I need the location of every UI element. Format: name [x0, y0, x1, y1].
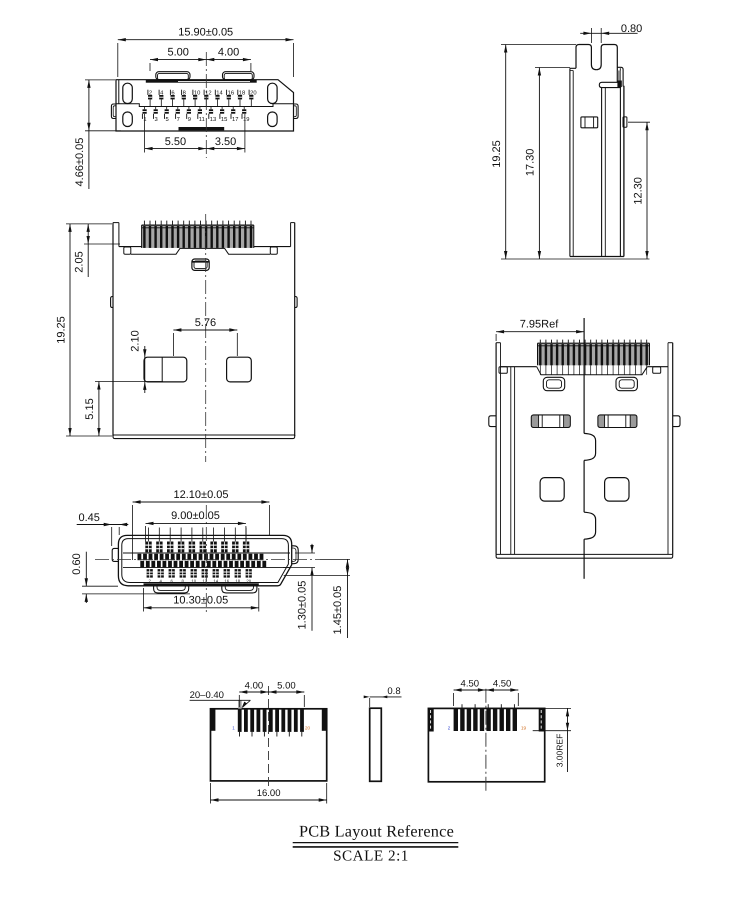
svg-text:19: 19: [243, 116, 249, 123]
svg-text:12: 12: [202, 579, 207, 584]
svg-text:1.45±0.05: 1.45±0.05: [332, 586, 344, 635]
svg-text:3: 3: [155, 116, 158, 123]
svg-text:12.30: 12.30: [632, 177, 644, 205]
svg-text:3.00REF: 3.00REF: [555, 734, 565, 768]
svg-text:15.90±0.05: 15.90±0.05: [178, 26, 233, 38]
svg-text:20: 20: [246, 579, 251, 584]
svg-text:4.00: 4.00: [218, 47, 239, 59]
svg-text:20: 20: [305, 726, 311, 731]
svg-text:4.50: 4.50: [493, 679, 512, 690]
svg-text:2.05: 2.05: [73, 251, 85, 272]
svg-text:20–0.40: 20–0.40: [190, 690, 224, 701]
svg-text:PCB Layout Reference: PCB Layout Reference: [299, 822, 454, 841]
svg-text:14: 14: [213, 579, 218, 584]
svg-text:1.30±0.05: 1.30±0.05: [296, 581, 308, 630]
svg-text:10.30±0.05: 10.30±0.05: [173, 595, 228, 607]
svg-text:12.10±0.05: 12.10±0.05: [174, 489, 229, 501]
svg-text:6: 6: [171, 89, 174, 96]
svg-text:10: 10: [194, 89, 200, 96]
svg-text:18: 18: [239, 89, 245, 96]
svg-text:0.80: 0.80: [621, 23, 642, 35]
svg-text:13: 13: [210, 116, 216, 123]
svg-text:5.50: 5.50: [165, 136, 186, 148]
svg-text:16.00: 16.00: [257, 788, 281, 799]
svg-text:11: 11: [199, 117, 205, 123]
svg-text:4.66±0.05: 4.66±0.05: [74, 138, 86, 187]
svg-text:5.00: 5.00: [167, 47, 188, 59]
svg-text:2: 2: [149, 89, 152, 96]
svg-text:9: 9: [188, 116, 191, 123]
svg-text:5.00: 5.00: [277, 681, 296, 692]
svg-text:0.60: 0.60: [71, 553, 83, 574]
svg-text:5: 5: [166, 117, 169, 123]
svg-text:0.45: 0.45: [78, 512, 99, 524]
svg-text:4.00: 4.00: [245, 681, 264, 692]
svg-text:19.25: 19.25: [491, 140, 503, 168]
svg-text:16: 16: [228, 89, 234, 96]
svg-text:20: 20: [250, 89, 256, 96]
svg-text:17: 17: [232, 117, 238, 123]
svg-text:9.00±0.05: 9.00±0.05: [171, 510, 220, 522]
svg-text:5.76: 5.76: [195, 317, 216, 329]
svg-text:0.8: 0.8: [387, 686, 400, 697]
svg-text:8: 8: [183, 89, 186, 96]
svg-text:5.15: 5.15: [84, 398, 96, 419]
svg-text:17.30: 17.30: [525, 149, 537, 177]
svg-text:16: 16: [224, 579, 229, 584]
svg-text:15: 15: [221, 117, 227, 123]
svg-text:1: 1: [143, 117, 146, 123]
svg-text:4.50: 4.50: [461, 679, 480, 690]
svg-text:14: 14: [216, 90, 223, 96]
svg-text:19.25: 19.25: [55, 316, 67, 344]
svg-text:18: 18: [235, 579, 240, 584]
svg-text:2.10: 2.10: [130, 330, 142, 351]
svg-text:7.95Ref: 7.95Ref: [520, 318, 559, 330]
svg-text:7: 7: [177, 117, 180, 123]
svg-text:19: 19: [521, 726, 527, 731]
svg-text:10: 10: [191, 579, 196, 584]
svg-text:3.50: 3.50: [215, 136, 236, 148]
svg-text:SCALE 2:1: SCALE 2:1: [333, 848, 409, 865]
